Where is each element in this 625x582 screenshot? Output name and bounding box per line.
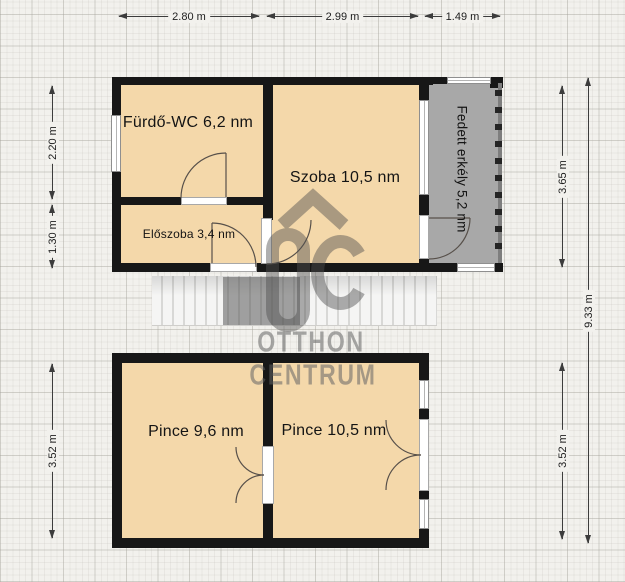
arrow-down-icon: [49, 191, 55, 200]
dimension-label: 3.52 m: [557, 430, 569, 472]
door-opening-furdo: [181, 197, 227, 205]
door-opening-entrance: [210, 263, 257, 272]
dimension-right-lower: 3.52 m: [562, 363, 563, 539]
door-opening-pince-divider: [262, 446, 274, 504]
dimension-label: 2.20 m: [47, 122, 59, 164]
window-pince-right-lower: [419, 499, 429, 529]
dimension-left-lower: 3.52 m: [52, 364, 53, 538]
room-label-pince-right: Pince 10,5 nm: [282, 422, 387, 440]
room-label-eloszoba: Előszoba 3,4 nm: [143, 227, 235, 241]
window-balcony-top: [447, 77, 491, 84]
room-label-furdo-wc: Fürdő-WC 6,2 nm: [123, 114, 253, 132]
wall-upper-top: [112, 77, 433, 85]
arrow-right-icon: [492, 13, 501, 19]
dimension-top-right: 1.49 m: [425, 16, 500, 17]
room-label-pince-left: Pince 9,6 nm: [148, 423, 244, 441]
window-furdo-left: [111, 115, 121, 172]
staircase: [152, 276, 437, 326]
dimension-label: 3.65 m: [557, 156, 569, 198]
arrow-down-icon: [49, 530, 55, 539]
window-pince-right-upper: [419, 380, 429, 409]
dimension-label: 2.99 m: [322, 11, 364, 23]
floor-plan-canvas: 2.80 m 2.99 m 1.49 m 2.20 m 1.30 m 3.52 …: [0, 0, 625, 582]
arrow-down-icon: [559, 259, 565, 268]
arrow-left-icon: [266, 13, 275, 19]
arrow-up-icon: [49, 204, 55, 213]
window-balcony-bottom: [457, 263, 495, 272]
arrow-up-icon: [49, 85, 55, 94]
arrow-down-icon: [49, 260, 55, 269]
watermark-brand-line1: OTTHON: [257, 327, 365, 360]
dimension-left-upper: 2.20 m: [52, 86, 53, 199]
door-opening-balcony: [419, 215, 429, 259]
door-opening-szoba: [261, 218, 272, 264]
dimension-label: 9.33 m: [583, 290, 595, 332]
dimension-label: 1.30 m: [47, 216, 59, 258]
arrow-up-icon: [559, 85, 565, 94]
arrow-right-icon: [251, 13, 260, 19]
balcony-railing-posts: [495, 90, 502, 252]
dimension-left-middle: 1.30 m: [52, 205, 53, 268]
arrow-up-icon: [49, 363, 55, 372]
dimension-right-total: 9.33 m: [588, 78, 589, 543]
arrow-left-icon: [118, 13, 127, 19]
door-opening-pince-right: [419, 419, 429, 491]
arrow-right-icon: [410, 13, 419, 19]
arrow-down-icon: [585, 535, 591, 544]
dimension-label: 2.80 m: [168, 11, 210, 23]
dimension-label: 3.52 m: [47, 430, 59, 472]
arrow-down-icon: [559, 531, 565, 540]
watermark-brand-line2: CENTRUM: [249, 360, 376, 393]
window-szoba-balcony: [419, 100, 429, 195]
room-label-szoba: Szoba 10,5 nm: [290, 169, 400, 187]
arrow-left-icon: [424, 13, 433, 19]
wall-lower-left: [112, 353, 122, 548]
room-label-fedett-erkely: Fedett erkély 5,2 nm: [455, 105, 470, 232]
dimension-label: 1.49 m: [442, 11, 484, 23]
dimension-right-upper: 3.65 m: [562, 86, 563, 267]
dimension-top-middle: 2.99 m: [267, 16, 418, 17]
arrow-up-icon: [559, 362, 565, 371]
arrow-up-icon: [585, 77, 591, 86]
wall-upper-bottom: [112, 263, 433, 272]
wall-upper-left: [112, 77, 121, 272]
dimension-top-left: 2.80 m: [119, 16, 259, 17]
